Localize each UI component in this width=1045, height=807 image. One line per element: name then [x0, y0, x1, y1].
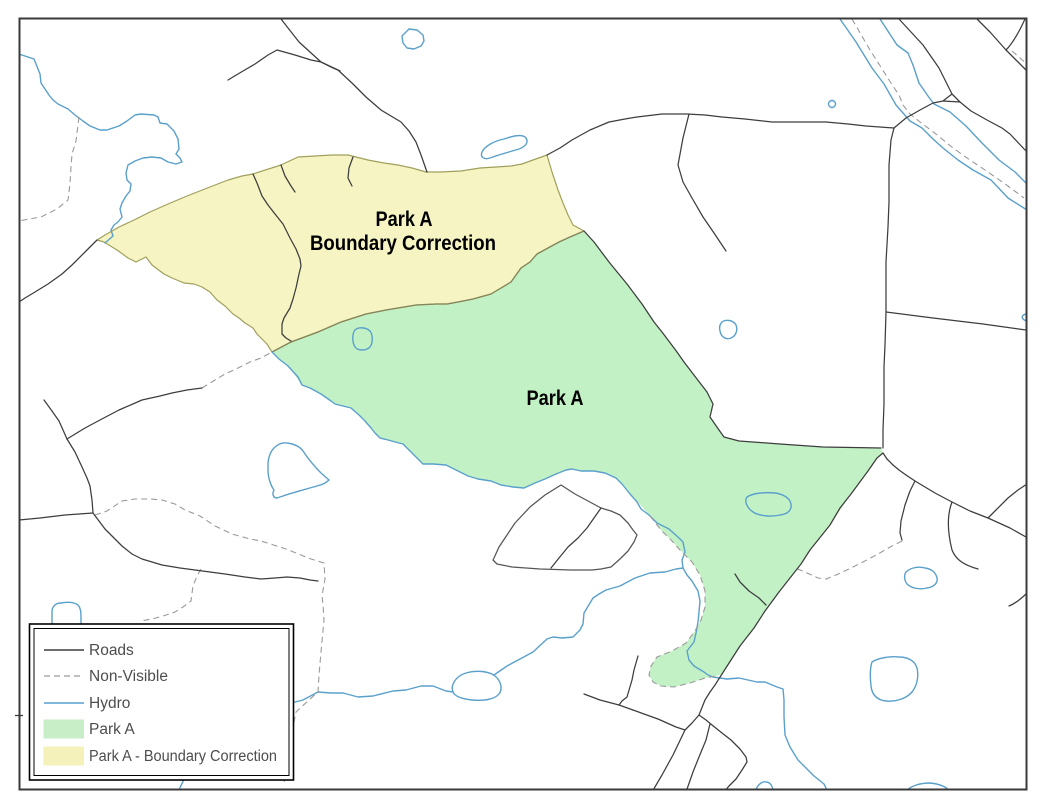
svg-text:Park A: Park A	[89, 721, 135, 738]
svg-text:Park A - Boundary Correction: Park A - Boundary Correction	[89, 748, 277, 765]
svg-text:Park A: Park A	[527, 387, 584, 410]
svg-text:Boundary Correction: Boundary Correction	[310, 232, 496, 255]
svg-text:Roads: Roads	[89, 642, 134, 659]
svg-text:Non-Visible: Non-Visible	[89, 668, 168, 685]
svg-text:Hydro: Hydro	[89, 695, 130, 712]
svg-text:Park A: Park A	[376, 208, 433, 231]
